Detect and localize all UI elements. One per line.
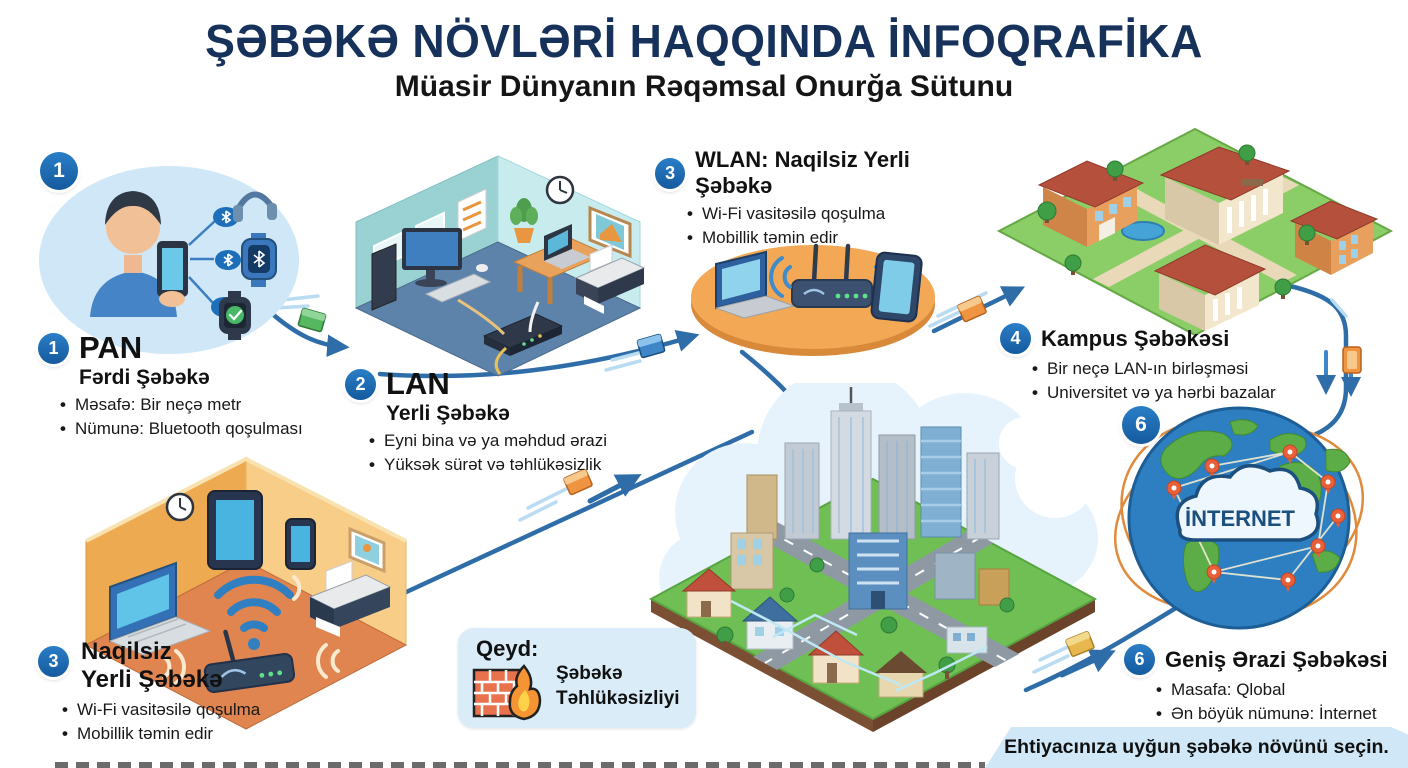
campus-illustration xyxy=(995,115,1395,353)
infographic-canvas: ŞƏBƏKƏ NÖVLƏRİ HAQQINDA İNFOQRAFİKA Müas… xyxy=(0,0,1408,768)
pan-name: PAN xyxy=(79,330,142,366)
wan-badge: 6 xyxy=(1124,644,1155,675)
phone-icon xyxy=(286,519,315,569)
campus-bullet: Bir neçə LAN-ın birləşməsi xyxy=(1030,357,1360,381)
wan-title: Geniş Ərazi Şəbəkəsi xyxy=(1165,647,1388,673)
clock-icon xyxy=(167,494,193,520)
pan-subtitle: Fərdi Şəbəkə xyxy=(79,366,348,390)
phone-icon xyxy=(157,241,188,307)
wlan-bullet: Wi-Fi vasitəsilə qoşulma xyxy=(685,202,985,226)
campus-bullet: Universitet və ya hərbi bazalar xyxy=(1030,381,1360,405)
note-box: Qeyd: Şəbəkə Təhlükəsizliyi xyxy=(458,628,696,728)
lan-bullet: Yüksək sürət və təhlükəsizlik xyxy=(367,453,675,477)
tablet-icon xyxy=(208,491,262,569)
note-line1: Şəbəkə xyxy=(556,662,680,687)
wlan-platform-illustration xyxy=(688,236,938,360)
pan-section-text: 1 PAN Fərdi Şəbəkə Məsafə: Bir neçə metr… xyxy=(38,330,348,441)
cutoff-text-strip xyxy=(55,762,985,768)
clock-icon xyxy=(547,177,573,203)
tablet-icon xyxy=(871,252,923,322)
note-line2: Təhlükəsizliyi xyxy=(556,687,680,712)
pan-illustration xyxy=(38,165,300,355)
wlan-bullet: Mobillik təmin edir xyxy=(685,226,985,250)
pan-badge: 1 xyxy=(38,333,69,364)
wlan-home-section-text: 3 Naqilsiz Yerli Şəbəkə Wi-Fi vasitəsilə… xyxy=(38,638,338,746)
lan-room-illustration xyxy=(338,150,658,388)
lan-name: LAN xyxy=(386,366,450,402)
campus-title: Kampus Şəbəkəsi xyxy=(1041,326,1229,352)
internet-label: İNTERNET xyxy=(1185,506,1296,531)
wlan-home-title-line1: Naqilsiz xyxy=(81,638,222,666)
wlan-title: WLAN: Naqilsiz Yerli Şəbəkə xyxy=(695,147,985,199)
wlan-home-bullet: Wi-Fi vasitəsilə qoşulma xyxy=(60,698,338,722)
wlan-badge: 3 xyxy=(655,158,685,189)
wan-section-text: 6 Geniş Ərazi Şəbəkəsi Masafa: Qlobal Ən… xyxy=(1124,644,1408,726)
lan-subtitle: Yerli Şəbəkə xyxy=(386,402,675,426)
campus-badge: 4 xyxy=(1000,323,1031,354)
footer-banner: Ehtiyacınıza uyğun şəbəkə növünü seçin. xyxy=(985,727,1408,768)
page-title: ŞƏBƏKƏ NÖVLƏRİ HAQQINDA İNFOQRAFİKA xyxy=(21,14,1387,68)
wan-globe-badge: 6 xyxy=(1122,406,1160,444)
wlan-home-badge: 3 xyxy=(38,646,69,677)
smartwatch-icon xyxy=(242,233,276,287)
wan-bullet: Ən böyük nümunə: İnternet xyxy=(1154,702,1408,726)
wlan-section-text: 3 WLAN: Naqilsiz Yerli Şəbəkə Wi-Fi vasi… xyxy=(655,147,985,250)
firewall-icon xyxy=(472,662,544,722)
pan-bullet: Məsafə: Bir neçə metr xyxy=(58,393,348,417)
wan-bullet: Masafa: Qlobal xyxy=(1154,678,1408,702)
lan-bullet: Eyni bina və ya məhdud ərazi xyxy=(367,429,675,453)
city-illustration xyxy=(635,383,1110,733)
pan-bullet: Nümunə: Bluetooth qoşulması xyxy=(58,417,348,441)
lan-badge: 2 xyxy=(345,369,376,400)
pan-illustration-badge: 1 xyxy=(40,152,78,190)
wlan-home-bullet: Mobillik təmin edir xyxy=(60,722,338,746)
page-subtitle: Müasir Dünyanın Rəqəmsal Onurğa Sütunu xyxy=(0,70,1408,104)
wlan-home-title-line2: Yerli Şəbəkə xyxy=(81,666,222,694)
campus-section-text: 4 Kampus Şəbəkəsi Bir neçə LAN-ın birləş… xyxy=(1000,323,1360,405)
note-heading: Qeyd: xyxy=(476,636,538,662)
footer-message: Ehtiyacınıza uyğun şəbəkə növünü seçin. xyxy=(1004,736,1389,759)
lan-section-text: 2 LAN Yerli Şəbəkə Eyni bina və ya məhdu… xyxy=(345,366,675,477)
